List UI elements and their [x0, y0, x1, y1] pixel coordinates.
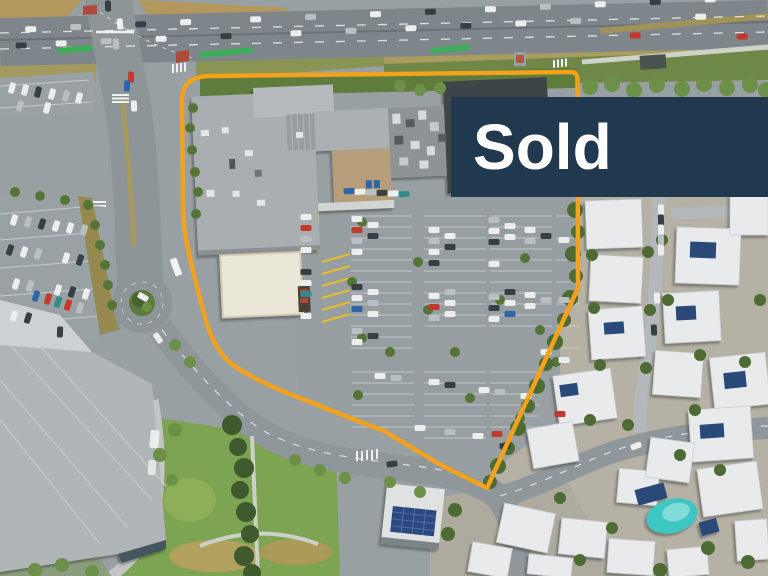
- sold-label: Sold: [473, 115, 612, 179]
- aerial-photo: [0, 0, 768, 576]
- cream-roof-building: [220, 252, 303, 317]
- sold-banner: Sold: [451, 97, 768, 197]
- property-listing-photo: Sold: [0, 0, 768, 576]
- solar-roof-building: [381, 483, 445, 550]
